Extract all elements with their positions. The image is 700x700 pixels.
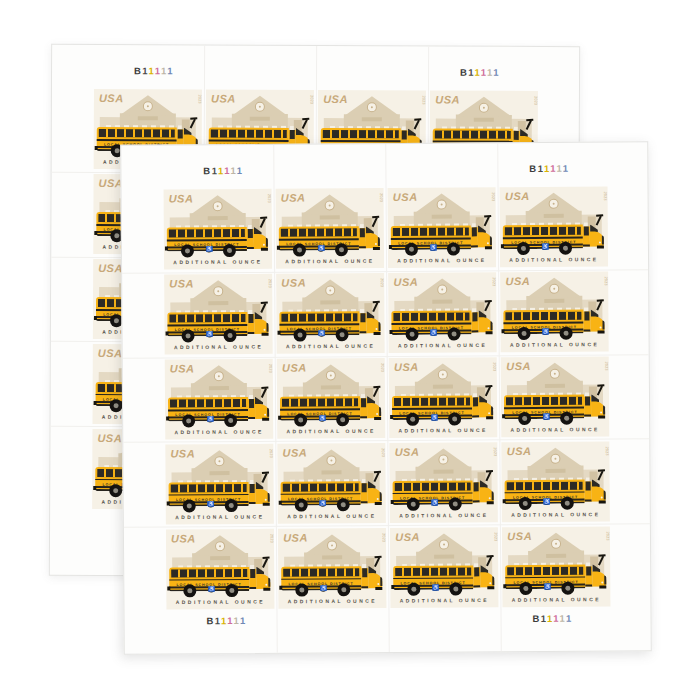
wheel-hub bbox=[522, 331, 527, 336]
schoolhouse-sign bbox=[545, 384, 565, 388]
bus-front-bumper bbox=[261, 248, 268, 251]
bus-grille bbox=[604, 575, 607, 584]
bus-grille bbox=[604, 490, 607, 499]
bus-rear-bumper bbox=[279, 500, 282, 504]
clock-icon bbox=[143, 101, 153, 111]
bus-headlight-icon bbox=[264, 414, 266, 416]
bus-headlight-icon bbox=[265, 499, 267, 501]
bus-door bbox=[360, 398, 367, 418]
bus-door bbox=[472, 312, 479, 332]
wheel-icon bbox=[181, 244, 194, 257]
bus-rear-bumper bbox=[94, 316, 97, 320]
bus-grille bbox=[491, 491, 494, 500]
bus-grille bbox=[490, 236, 493, 245]
clock-icon bbox=[439, 539, 449, 549]
bus-headlight-icon bbox=[265, 583, 267, 585]
wheel-hub bbox=[341, 502, 346, 507]
wheel-icon bbox=[450, 582, 463, 595]
wheel-hub bbox=[228, 418, 233, 423]
wheelchair-symbol-icon: ♿ bbox=[208, 501, 214, 507]
wheel-hub bbox=[299, 587, 304, 592]
bus-rear-bumper bbox=[501, 244, 504, 248]
wheel-hub bbox=[523, 501, 528, 506]
usa-text: USA bbox=[98, 262, 123, 274]
wheel-icon bbox=[562, 581, 575, 594]
wheelchair-symbol-icon: ♿ bbox=[318, 330, 324, 336]
schoolhouse-sign bbox=[546, 553, 566, 557]
year-mark: 2023 bbox=[421, 95, 426, 104]
wheel-hub bbox=[565, 416, 570, 421]
additional-ounce-label: ADDITIONAL OUNCE bbox=[277, 344, 385, 350]
bus-grille bbox=[265, 238, 268, 247]
wheel-icon bbox=[449, 497, 462, 510]
school-bus-illustration: LOCAL SCHOOL DISTRICT ♿ bbox=[392, 306, 493, 340]
usa-text: USA bbox=[169, 192, 194, 204]
bus-windows bbox=[282, 313, 358, 322]
clock-icon bbox=[327, 455, 337, 465]
wheelchair-symbol-icon: ♿ bbox=[431, 414, 437, 420]
year-mark: 2023 bbox=[604, 276, 609, 285]
stamp-sheet-front: B11111 B11111 B11111 B11111 USA 2023 LOC… bbox=[120, 141, 652, 655]
school-bus-illustration: LOCAL SCHOOL DISTRICT ♿ bbox=[391, 221, 492, 255]
usa-text: USA bbox=[505, 190, 530, 202]
school-bus-illustration: LOCAL SCHOOL DISTRICT ♿ bbox=[393, 561, 494, 595]
school-bus-illustration: LOCAL SCHOOL DISTRICT ♿ bbox=[281, 477, 382, 511]
wheel-hub bbox=[563, 246, 568, 251]
wheel-icon bbox=[225, 584, 238, 597]
bus-windows bbox=[506, 396, 582, 405]
wheel-hub bbox=[453, 501, 458, 506]
bus-stripe bbox=[280, 323, 360, 325]
bus-grille bbox=[268, 577, 271, 586]
bus-headlight-icon bbox=[263, 244, 265, 246]
bus-stripe bbox=[169, 494, 249, 496]
bus-windows bbox=[506, 312, 582, 321]
bus-rear-bumper bbox=[502, 329, 505, 333]
additional-ounce-label: ADDITIONAL OUNCE bbox=[503, 597, 611, 603]
product-image: B11111 B11111 B11111 B11111 USA 2023 LOC… bbox=[0, 0, 700, 700]
wheel-icon bbox=[294, 413, 307, 426]
bus-door bbox=[359, 228, 366, 248]
wheel-icon bbox=[560, 411, 573, 424]
bus-stripe bbox=[393, 492, 473, 494]
bus-rear-bumper bbox=[167, 586, 170, 590]
wheel-icon bbox=[336, 413, 349, 426]
wheel-hub bbox=[229, 588, 234, 593]
bus-front-bumper bbox=[263, 503, 270, 506]
usa-text: USA bbox=[506, 275, 531, 287]
usa-text: USA bbox=[281, 276, 306, 288]
bus-front-bumper bbox=[597, 245, 604, 248]
bus-headlight-icon bbox=[377, 498, 379, 500]
clock-icon bbox=[215, 541, 225, 551]
wheel-hub bbox=[454, 586, 459, 591]
wheel-hub bbox=[521, 246, 526, 251]
clock-icon bbox=[213, 286, 223, 296]
wheel-hub bbox=[298, 417, 303, 422]
additional-ounce-label: ADDITIONAL OUNCE bbox=[389, 343, 497, 349]
bus-windows bbox=[169, 314, 245, 323]
usa-text: USA bbox=[283, 531, 308, 543]
wheelchair-symbol-icon: ♿ bbox=[544, 498, 550, 504]
bus-door bbox=[248, 399, 255, 419]
wheel-icon bbox=[560, 327, 573, 340]
plate-number: B11111 bbox=[525, 163, 573, 174]
bus-windows bbox=[211, 130, 287, 138]
bus-front-bumper bbox=[262, 418, 269, 421]
clock-icon bbox=[551, 538, 561, 548]
bus-windows bbox=[282, 398, 358, 407]
wheel-hub bbox=[565, 500, 570, 505]
stamp: USA 2023 LOCAL SCHOOL DISTRICT bbox=[502, 441, 610, 522]
wheel-hub bbox=[187, 503, 192, 508]
bus-grille bbox=[378, 322, 381, 331]
additional-ounce-label: ADDITIONAL OUNCE bbox=[278, 598, 386, 604]
usa-text: USA bbox=[393, 191, 418, 203]
year-mark: 2023 bbox=[268, 448, 273, 457]
wheelchair-symbol-icon: ♿ bbox=[543, 329, 549, 335]
usa-text: USA bbox=[507, 530, 532, 542]
additional-ounce-label: ADDITIONAL OUNCE bbox=[165, 429, 273, 435]
year-mark: 2023 bbox=[603, 191, 608, 200]
bus-grille bbox=[603, 405, 606, 414]
year-mark: 2023 bbox=[267, 194, 272, 203]
bus-front-bumper bbox=[486, 416, 493, 419]
bus-rear-bumper bbox=[94, 231, 97, 235]
year-mark: 2023 bbox=[491, 192, 496, 201]
bus-windows bbox=[395, 567, 471, 576]
wheel-icon bbox=[559, 242, 572, 255]
year-mark: 2023 bbox=[605, 446, 610, 455]
wheel-hub bbox=[228, 333, 233, 338]
bus-door bbox=[583, 227, 590, 247]
school-bus-illustration: LOCAL SCHOOL DISTRICT ♿ bbox=[503, 220, 604, 254]
plate-number: B11111 bbox=[203, 615, 251, 626]
bus-windows bbox=[394, 312, 470, 321]
usa-text: USA bbox=[506, 360, 531, 372]
wheel-hub bbox=[115, 148, 120, 153]
year-mark: 2023 bbox=[269, 533, 274, 542]
plate-number: B11111 bbox=[130, 65, 178, 76]
wheel-hub bbox=[410, 417, 415, 422]
bus-door bbox=[247, 314, 254, 334]
school-bus-illustration: LOCAL SCHOOL DISTRICT ♿ bbox=[169, 562, 270, 596]
year-mark: 2023 bbox=[380, 363, 385, 372]
bus-windows bbox=[171, 569, 247, 578]
wheel-icon bbox=[182, 329, 195, 342]
usa-text: USA bbox=[395, 445, 420, 457]
bus-stripe bbox=[391, 237, 471, 239]
additional-ounce-label: ADDITIONAL OUNCE bbox=[277, 428, 385, 434]
bus-windows bbox=[281, 228, 357, 237]
bus-door bbox=[249, 484, 256, 504]
bus-rear-bumper bbox=[389, 245, 392, 249]
plate-number: B11111 bbox=[199, 165, 247, 176]
stamp: USA 2023 LOCAL SCHOOL DISTRICT bbox=[502, 526, 610, 607]
usa-text: USA bbox=[323, 93, 348, 105]
wheelchair-symbol-icon: ♿ bbox=[543, 413, 549, 419]
bus-front-bumper bbox=[599, 500, 606, 503]
bus-windows bbox=[508, 566, 584, 575]
bus-door bbox=[586, 566, 593, 586]
wheelchair-symbol-icon: ♿ bbox=[320, 585, 326, 591]
bus-stripe bbox=[167, 239, 247, 241]
plate-number: B11111 bbox=[456, 67, 504, 78]
wheel-hub bbox=[185, 248, 190, 253]
bus-rear-bumper bbox=[503, 499, 506, 503]
usa-text: USA bbox=[282, 361, 307, 373]
bus-grille bbox=[267, 408, 270, 417]
wheel-hub bbox=[452, 416, 457, 421]
usa-text: USA bbox=[171, 532, 196, 544]
schoolhouse-sign bbox=[433, 384, 453, 388]
wheel-hub bbox=[524, 586, 529, 591]
year-mark: 2023 bbox=[381, 448, 386, 457]
wheel-hub bbox=[410, 332, 415, 337]
additional-ounce-label: ADDITIONAL OUNCE bbox=[278, 513, 386, 519]
bus-rear-bumper bbox=[95, 146, 98, 150]
additional-ounce-label: ADDITIONAL OUNCE bbox=[391, 597, 499, 603]
wheel-hub bbox=[114, 318, 119, 323]
stamp: USA 2023 LOCAL SCHOOL DISTRICT bbox=[390, 527, 498, 608]
usa-text: USA bbox=[395, 530, 420, 542]
bus-stripe bbox=[279, 238, 359, 240]
bus-front-bumper bbox=[600, 585, 607, 588]
bus-front-bumper bbox=[263, 587, 270, 590]
stamp: USA 2023 LOCAL SCHOOL DISTRICT bbox=[390, 442, 498, 523]
bus-windows bbox=[323, 130, 399, 138]
bus-front-bumper bbox=[487, 501, 494, 504]
bus-windows bbox=[283, 568, 359, 577]
wheel-hub bbox=[452, 331, 457, 336]
bus-headlight-icon bbox=[377, 583, 379, 585]
bus-headlight-icon bbox=[489, 497, 491, 499]
bus-door bbox=[471, 227, 478, 247]
bus-windows bbox=[171, 484, 247, 493]
bus-stripe bbox=[169, 579, 249, 581]
schoolhouse-sign bbox=[321, 385, 341, 389]
wheelchair-symbol-icon: ♿ bbox=[542, 244, 548, 250]
wheel-icon bbox=[518, 327, 531, 340]
wheel-icon bbox=[406, 328, 419, 341]
wheel-icon bbox=[447, 242, 460, 255]
year-mark: 2023 bbox=[493, 447, 498, 456]
bus-windows bbox=[505, 227, 581, 236]
bus-front-bumper bbox=[485, 246, 492, 249]
usa-text: USA bbox=[99, 92, 124, 104]
wheelchair-symbol-icon: ♿ bbox=[319, 415, 325, 421]
schoolhouse-sign bbox=[432, 215, 452, 219]
school-bus-illustration: LOCAL SCHOOL DISTRICT ♿ bbox=[169, 478, 270, 512]
clock-icon bbox=[326, 370, 336, 380]
bus-rear-bumper bbox=[166, 331, 169, 335]
wheel-hub bbox=[186, 333, 191, 338]
bus-rear-bumper bbox=[93, 486, 96, 490]
wheel-icon bbox=[519, 497, 532, 510]
schoolhouse-sign bbox=[208, 216, 228, 220]
schoolhouse-sign bbox=[545, 299, 565, 303]
wheel-icon bbox=[110, 399, 123, 412]
year-mark: 2023 bbox=[379, 278, 384, 287]
usa-text: USA bbox=[211, 93, 236, 105]
bus-rear-bumper bbox=[392, 585, 395, 589]
bus-stripe bbox=[505, 491, 585, 493]
schoolhouse-sign bbox=[209, 386, 229, 390]
wheel-icon bbox=[225, 499, 238, 512]
usa-text: USA bbox=[170, 447, 195, 459]
stamp: USA 2023 LOCAL SCHOOL DISTRICT bbox=[388, 272, 496, 353]
bus-stripe bbox=[503, 237, 583, 239]
wheel-icon bbox=[408, 582, 421, 595]
usa-text: USA bbox=[394, 361, 419, 373]
bus-front-bumper bbox=[599, 415, 606, 418]
bus-windows bbox=[395, 482, 471, 491]
wheel-hub bbox=[523, 416, 528, 421]
wheel-hub bbox=[411, 501, 416, 506]
bus-front-bumper bbox=[598, 330, 605, 333]
schoolhouse-sign bbox=[434, 554, 454, 558]
bus-stripe bbox=[280, 408, 360, 410]
additional-ounce-label: ADDITIONAL OUNCE bbox=[501, 342, 609, 348]
year-mark: 2023 bbox=[381, 533, 386, 542]
wheelchair-symbol-icon: ♿ bbox=[320, 500, 326, 506]
wheel-icon bbox=[293, 244, 306, 257]
bus-front-bumper bbox=[375, 587, 382, 590]
wheel-hub bbox=[114, 233, 119, 238]
additional-ounce-label: ADDITIONAL OUNCE bbox=[390, 513, 498, 519]
wheel-hub bbox=[186, 418, 191, 423]
bus-grille bbox=[378, 237, 381, 246]
bus-grille bbox=[491, 406, 494, 415]
stamp: USA 2023 LOCAL SCHOOL DISTRICT bbox=[165, 443, 273, 524]
clock-icon bbox=[213, 201, 223, 211]
clock-icon bbox=[327, 540, 337, 550]
usa-text: USA bbox=[169, 277, 194, 289]
wheelchair-symbol-icon: ♿ bbox=[207, 416, 213, 422]
bus-door bbox=[584, 311, 591, 331]
bus-front-bumper bbox=[262, 333, 269, 336]
wheel-hub bbox=[298, 332, 303, 337]
bus-grille bbox=[490, 321, 493, 330]
stamp: USA 2023 LOCAL SCHOOL DISTRICT bbox=[165, 359, 273, 440]
bus-headlight-icon bbox=[264, 329, 266, 331]
stamp: USA 2023 LOCAL SCHOOL DISTRICT bbox=[500, 271, 608, 352]
usa-text: USA bbox=[97, 432, 122, 444]
bus-rear-bumper bbox=[94, 401, 97, 405]
wheelchair-symbol-icon: ♿ bbox=[318, 245, 324, 251]
wheel-hub bbox=[451, 247, 456, 252]
schoolhouse-sign bbox=[250, 117, 270, 121]
wheel-hub bbox=[299, 502, 304, 507]
year-mark: 2023 bbox=[533, 96, 538, 105]
year-mark: 2023 bbox=[268, 364, 273, 373]
clock-icon bbox=[439, 454, 449, 464]
wheel-icon bbox=[561, 496, 574, 509]
stamp: USA 2023 LOCAL SCHOOL DISTRICT bbox=[166, 528, 274, 609]
school-bus-illustration: LOCAL SCHOOL DISTRICT ♿ bbox=[279, 222, 380, 256]
clock-icon bbox=[214, 456, 224, 466]
year-mark: 2023 bbox=[493, 532, 498, 541]
bus-rear-bumper bbox=[165, 247, 168, 251]
wheel-icon bbox=[294, 328, 307, 341]
wheel-icon bbox=[224, 329, 237, 342]
wheelchair-symbol-icon: ♿ bbox=[432, 584, 438, 590]
schoolhouse-sign bbox=[210, 556, 230, 560]
bus-stripe bbox=[504, 406, 584, 408]
bus-door bbox=[361, 483, 368, 503]
additional-ounce-label: ADDITIONAL OUNCE bbox=[389, 428, 497, 434]
wheel-hub bbox=[341, 587, 346, 592]
wheel-hub bbox=[113, 488, 118, 493]
bus-stripe bbox=[506, 576, 586, 578]
schoolhouse-sign bbox=[362, 117, 382, 121]
wheelchair-symbol-icon: ♿ bbox=[430, 244, 436, 250]
stamp: USA 2023 LOCAL SCHOOL DISTRICT bbox=[501, 356, 609, 437]
bus-windows bbox=[393, 227, 469, 236]
wheel-hub bbox=[412, 586, 417, 591]
plate-number: B11111 bbox=[529, 613, 577, 624]
bus-headlight-icon bbox=[490, 582, 492, 584]
wheel-icon bbox=[337, 583, 350, 596]
usa-text: USA bbox=[98, 347, 123, 359]
bus-door bbox=[247, 229, 254, 249]
usa-text: USA bbox=[435, 94, 460, 106]
wheel-icon bbox=[517, 242, 530, 255]
usa-text: USA bbox=[281, 192, 306, 204]
stamp: USA 2023 LOCAL SCHOOL DISTRICT bbox=[276, 188, 384, 269]
bus-rear-bumper bbox=[278, 331, 281, 335]
bus-grille bbox=[267, 493, 270, 502]
bus-stripe bbox=[281, 578, 361, 580]
bus-front-bumper bbox=[374, 417, 381, 420]
bus-door bbox=[473, 567, 480, 587]
school-bus-illustration: LOCAL SCHOOL DISTRICT ♿ bbox=[506, 560, 607, 594]
school-bus-illustration: LOCAL SCHOOL DISTRICT ♿ bbox=[280, 392, 381, 426]
stamp: USA 2023 LOCAL SCHOOL DISTRICT bbox=[389, 357, 497, 438]
wheel-hub bbox=[114, 403, 119, 408]
clock-icon bbox=[214, 371, 224, 381]
bus-windows bbox=[394, 397, 470, 406]
school-bus-illustration: LOCAL SCHOOL DISTRICT ♿ bbox=[279, 307, 380, 341]
school-bus-illustration: LOCAL SCHOOL DISTRICT ♿ bbox=[167, 223, 268, 257]
stamp: USA 2023 LOCAL SCHOOL DISTRICT bbox=[500, 186, 608, 267]
bus-stripe bbox=[97, 139, 177, 141]
additional-ounce-label: ADDITIONAL OUNCE bbox=[166, 599, 274, 605]
bus-grille bbox=[602, 320, 605, 329]
bus-rear-bumper bbox=[279, 585, 282, 589]
bus-stripe bbox=[167, 324, 247, 326]
bus-rear-bumper bbox=[278, 416, 281, 420]
bus-windows bbox=[507, 481, 583, 490]
bus-front-bumper bbox=[375, 502, 382, 505]
bus-grille bbox=[379, 492, 382, 501]
bus-stripe bbox=[394, 577, 474, 579]
bus-windows bbox=[99, 129, 175, 137]
school-bus-illustration: LOCAL SCHOOL DISTRICT ♿ bbox=[168, 393, 269, 427]
year-mark: 2023 bbox=[197, 94, 202, 103]
schoolhouse-sign bbox=[474, 118, 494, 122]
wheelchair-symbol-icon: ♿ bbox=[431, 329, 437, 335]
schoolhouse-sign bbox=[138, 116, 158, 120]
bus-stripe bbox=[392, 322, 472, 324]
bus-stripe bbox=[321, 140, 401, 142]
bus-windows bbox=[169, 229, 245, 238]
schoolhouse-sign bbox=[546, 468, 566, 472]
bus-grille bbox=[492, 576, 495, 585]
wheel-hub bbox=[229, 503, 234, 508]
year-mark: 2023 bbox=[492, 362, 497, 371]
bus-front-bumper bbox=[488, 586, 495, 589]
